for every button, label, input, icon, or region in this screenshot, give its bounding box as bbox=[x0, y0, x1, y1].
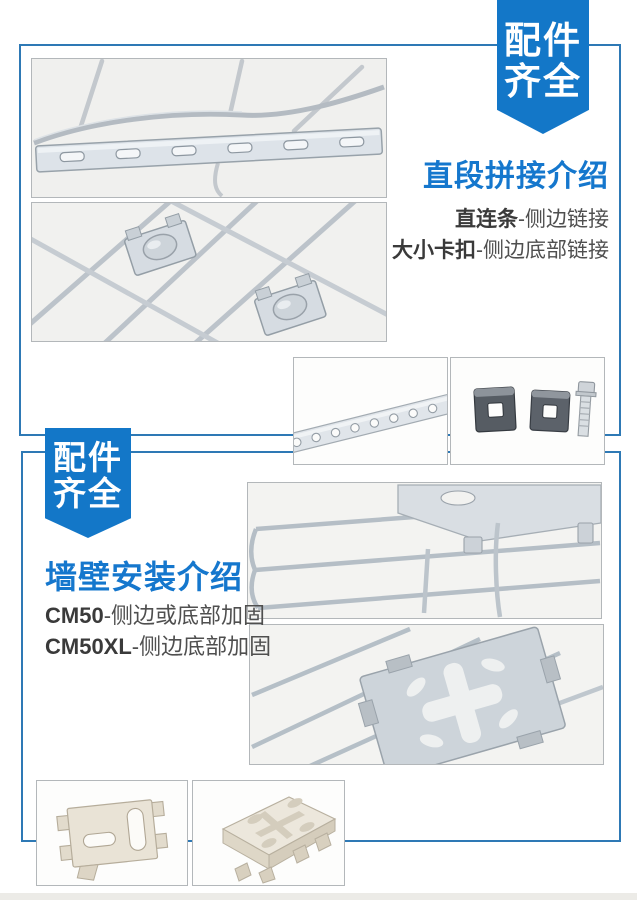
feature-desc: -侧边链接 bbox=[518, 208, 609, 231]
photo-clamp-buckles-on-mesh bbox=[31, 202, 387, 342]
feature-term: CM50 bbox=[45, 603, 104, 628]
accessories-complete-ribbon-left: 配件 齐全 bbox=[45, 428, 131, 538]
feature-desc: -侧边底部加固 bbox=[132, 634, 271, 659]
washers-bolt-illustration bbox=[451, 358, 604, 464]
badge-text-line1: 配件 bbox=[497, 20, 589, 61]
feature-line: CM50-侧边或底部加固 bbox=[45, 600, 271, 631]
photo-cm50-bracket bbox=[36, 780, 188, 886]
connector-strip-illustration bbox=[32, 59, 386, 197]
section1-feature-list: 直连条-侧边链接 大小卡扣-侧边底部链接 bbox=[392, 204, 609, 266]
product-detail-page: 配件 齐全 配件 齐全 直段拼接介绍 直连条-侧边链接 大小卡扣-侧边底部链接 … bbox=[0, 0, 637, 900]
photo-connector-strip-on-tray bbox=[31, 58, 387, 198]
section2-title: 墙壁安装介绍 bbox=[45, 552, 243, 598]
cm50xl-plate-product-illustration bbox=[193, 781, 344, 885]
feature-line: 直连条-侧边链接 bbox=[392, 204, 609, 235]
photo-cm50xl-plate bbox=[192, 780, 345, 886]
feature-term: CM50XL bbox=[45, 634, 132, 659]
feature-line: CM50XL-侧边底部加固 bbox=[45, 631, 271, 662]
feature-desc: -侧边或底部加固 bbox=[104, 603, 265, 628]
feature-line: 大小卡扣-侧边底部链接 bbox=[392, 235, 609, 266]
photo-cm50xl-plate-on-basket bbox=[249, 624, 604, 765]
cm50-bracket-product-illustration bbox=[37, 781, 187, 885]
feature-term: 大小卡扣 bbox=[392, 239, 476, 262]
clamp-buckles-illustration bbox=[32, 203, 386, 341]
badge-text-line1: 配件 bbox=[45, 440, 131, 476]
photo-buckle-washers-and-bolt bbox=[450, 357, 605, 465]
section1-title: 直段拼接介绍 bbox=[423, 151, 609, 195]
photo-cm50-bracket-on-basket bbox=[247, 482, 602, 619]
badge-text-line2: 齐全 bbox=[497, 61, 589, 102]
cm50-bracket-illustration bbox=[248, 483, 601, 618]
next-section-edge-strip bbox=[0, 893, 637, 900]
accessories-complete-ribbon-top: 配件 齐全 bbox=[497, 0, 589, 134]
badge-text-line2: 齐全 bbox=[45, 476, 131, 512]
feature-term: 直连条 bbox=[455, 208, 518, 231]
cm50xl-plate-illustration bbox=[250, 625, 603, 764]
feature-desc: -侧边底部链接 bbox=[476, 239, 609, 262]
section2-feature-list: CM50-侧边或底部加固 CM50XL-侧边底部加固 bbox=[45, 600, 271, 662]
perforated-bar-illustration bbox=[294, 358, 447, 464]
photo-perforated-connector-bar bbox=[293, 357, 448, 465]
